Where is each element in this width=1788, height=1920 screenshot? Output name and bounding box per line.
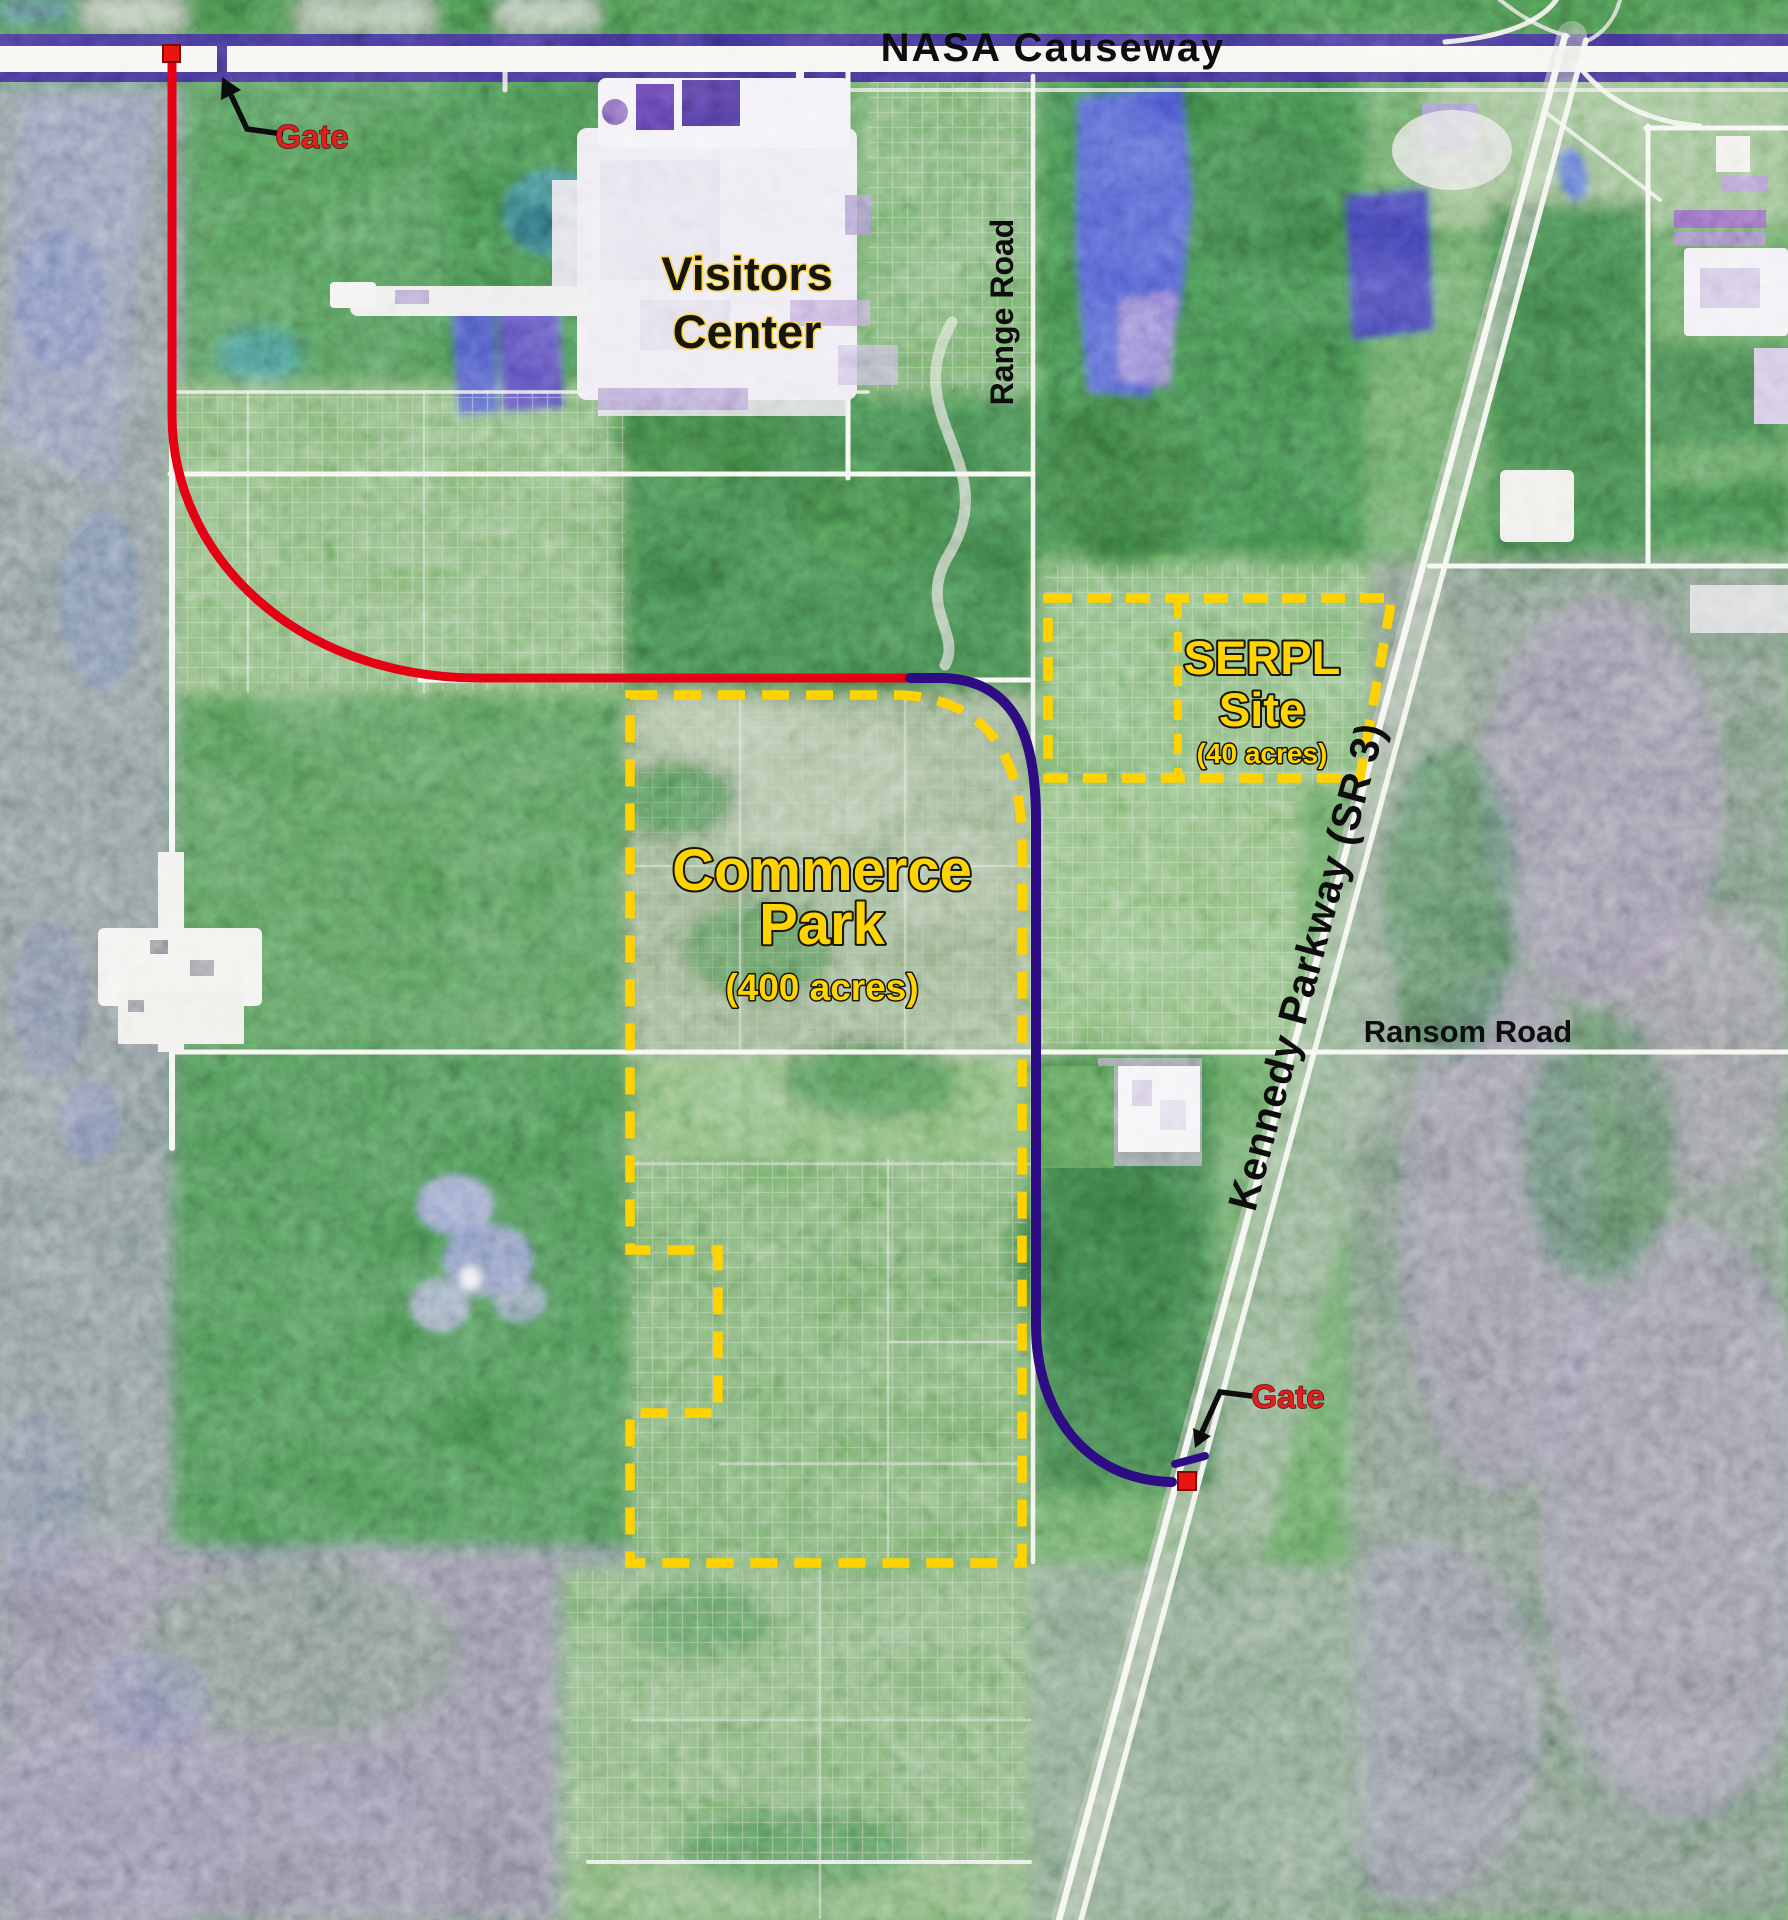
map-viewport: NASA Causeway Gate Visitors Center Range… bbox=[0, 0, 1788, 1920]
label-visitors-center-line1: Visitors bbox=[661, 247, 833, 300]
label-range-road: Range Road bbox=[984, 219, 1020, 406]
label-commerce-park-line2: Park bbox=[759, 892, 886, 957]
label-serpl-acres: (40 acres) bbox=[1197, 738, 1328, 769]
gate-marker-north bbox=[163, 45, 180, 62]
label-serpl-line2: Site bbox=[1219, 683, 1305, 736]
label-commerce-park-acres: (400 acres) bbox=[725, 967, 918, 1008]
label-serpl-line1: SERPL bbox=[1184, 631, 1341, 684]
label-visitors-center-line2: Center bbox=[673, 305, 822, 358]
label-ransom-road: Ransom Road bbox=[1364, 1014, 1572, 1049]
noise-overlay-fine bbox=[0, 0, 1788, 1920]
gate-marker-south bbox=[1178, 1472, 1196, 1490]
label-gate-south: Gate bbox=[1251, 1378, 1324, 1415]
label-gate-north: Gate bbox=[275, 118, 348, 155]
label-nasa-causeway: NASA Causeway bbox=[881, 26, 1226, 70]
satellite-map: NASA Causeway Gate Visitors Center Range… bbox=[0, 0, 1788, 1920]
